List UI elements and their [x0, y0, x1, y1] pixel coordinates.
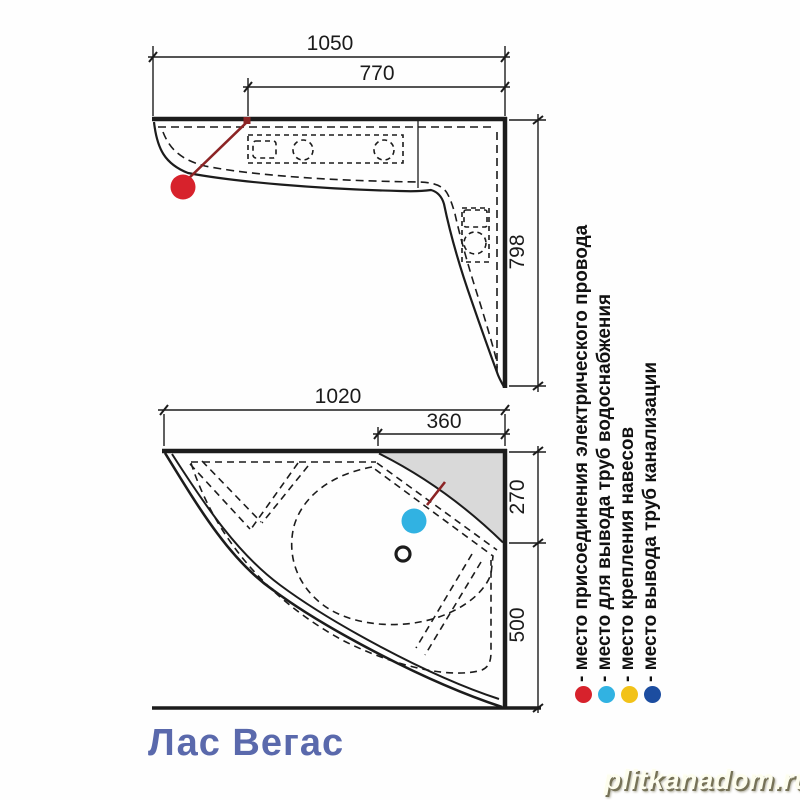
legend-label-electric: - место присоединения электрического про… [572, 225, 592, 682]
water-supply-marker-dot [402, 509, 427, 534]
legend-dot-water-supply [598, 686, 615, 703]
model-title: Лас Вегас [148, 722, 344, 765]
dim-label-1050: 1050 [307, 32, 354, 55]
top-view [148, 46, 546, 392]
drawing-page: 1050 770 798 1020 360 270 500 - место пр… [0, 0, 800, 800]
dim-label-360: 360 [426, 410, 461, 433]
electric-marker-anchor [244, 117, 251, 124]
top-view-dashed-contours [158, 127, 497, 372]
dim-label-270: 270 [506, 479, 529, 514]
faucet-plate [248, 135, 403, 163]
dim-label-798: 798 [506, 234, 529, 269]
dim-label-1020: 1020 [315, 385, 362, 408]
drain-hole [396, 547, 410, 561]
legend-label-hangers: - место крепления навесов [618, 427, 638, 682]
dim-270-500 [533, 446, 543, 713]
electric-marker-leader [186, 122, 247, 181]
legend-dot-hangers [621, 686, 638, 703]
electric-marker [171, 117, 251, 200]
electric-marker-dot [171, 175, 196, 200]
legend-dot-electric [575, 686, 592, 703]
plan-view [152, 405, 546, 713]
top-view-wall-edges [152, 117, 507, 388]
legend-dot-sewer [644, 686, 661, 703]
side-mounting-plate [462, 208, 489, 262]
dim-label-770: 770 [359, 62, 394, 85]
dim-label-500: 500 [506, 607, 529, 642]
site-watermark: plitkanadom.ru [604, 764, 800, 796]
legend-label-water-supply: - место для вывода труб водоснабжения [595, 294, 615, 682]
legend-label-sewer: - место вывода труб канализации [641, 362, 661, 682]
corner-shelf [379, 453, 504, 543]
bathtub-technical-drawing: 1050 770 798 1020 360 270 500 [0, 0, 800, 800]
